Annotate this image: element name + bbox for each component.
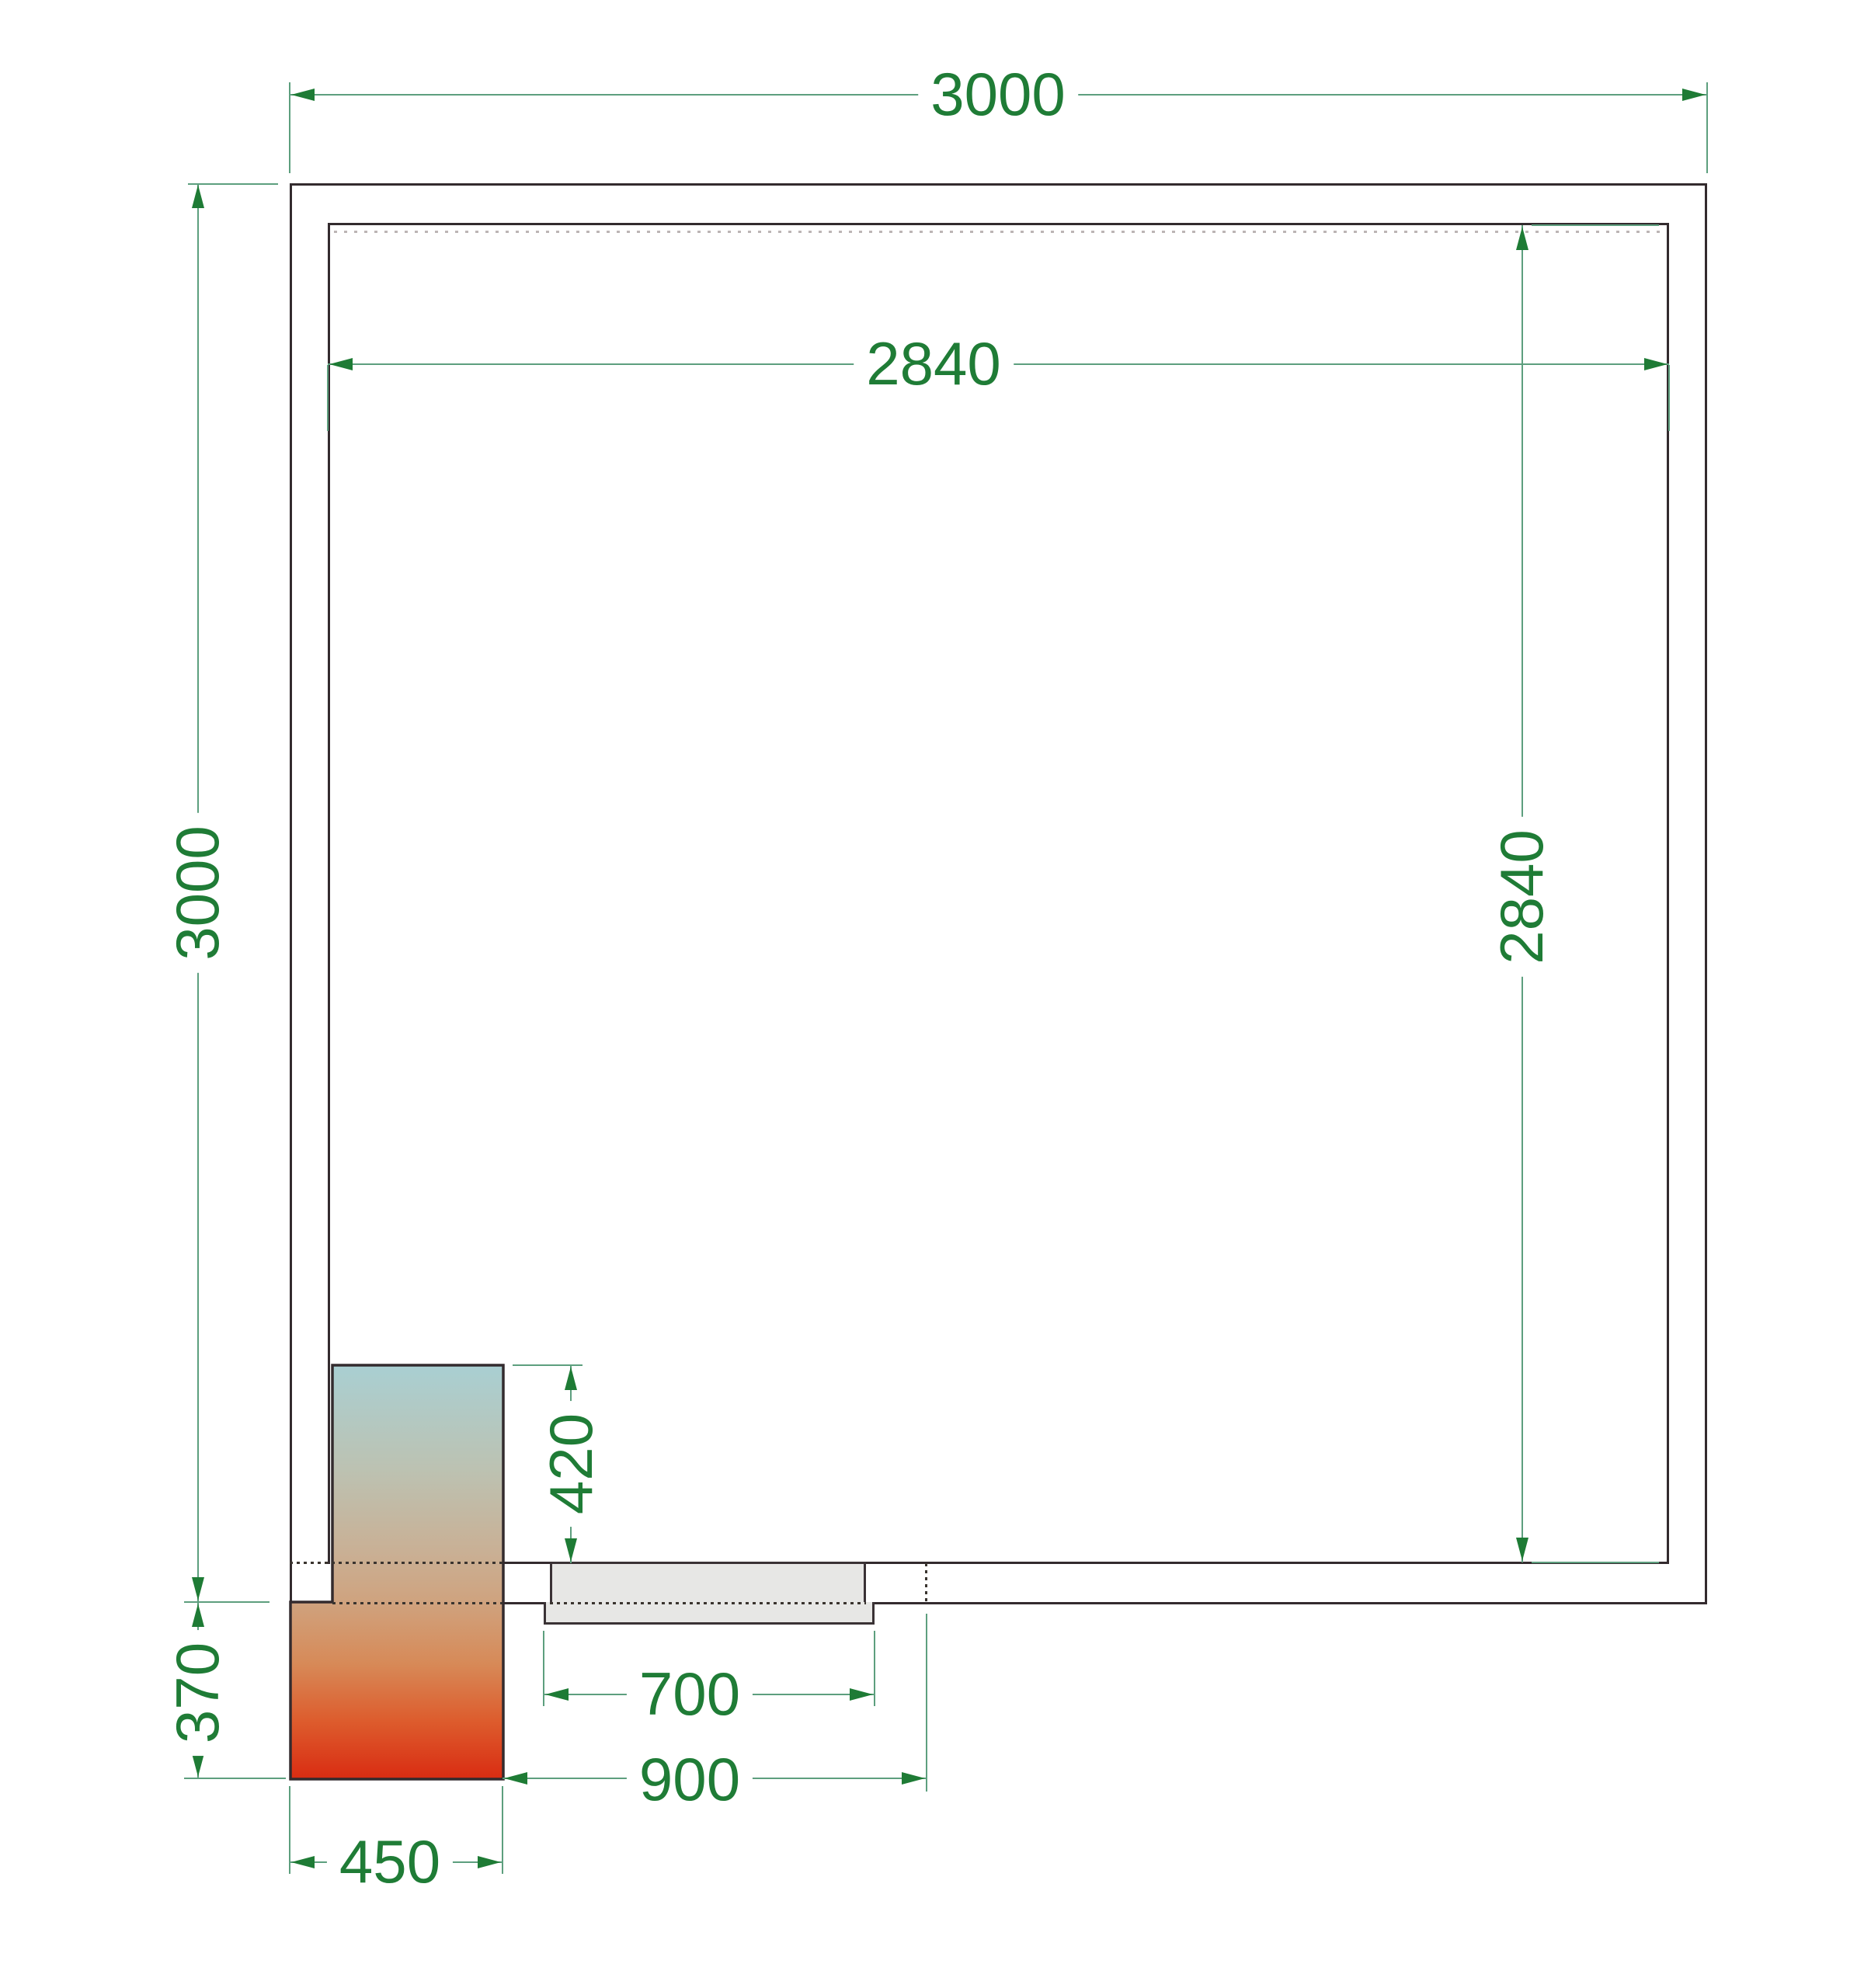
dim-text-unit-depth: 420 xyxy=(538,1401,605,1527)
ext-outer-width-left xyxy=(289,82,290,173)
dim-arrow-up-icon xyxy=(565,1367,577,1390)
dim-arrow-down-icon xyxy=(192,1753,204,1777)
dim-arrow-left-icon xyxy=(329,358,353,370)
cooling-unit-block xyxy=(288,1364,506,1781)
ceiling-hidden-line xyxy=(334,231,1667,233)
dim-arrow-down-icon xyxy=(192,1577,204,1600)
dim-text-inner-width: 2840 xyxy=(854,331,1014,398)
dim-arrow-left-icon xyxy=(504,1772,527,1785)
hidden-outer-wall-line-over-unit xyxy=(332,1602,503,1604)
ext-inner-height-top xyxy=(1532,224,1659,226)
ext-door-opening-right xyxy=(926,1614,927,1792)
dim-text-inner-height: 2840 xyxy=(1489,817,1556,977)
wall-outer-bottom-line-right xyxy=(866,1602,1707,1604)
ext-outer-width-right xyxy=(1706,82,1708,173)
hidden-inner-wall-line-over-unit xyxy=(290,1562,503,1564)
dim-arrow-left-icon xyxy=(291,1856,315,1868)
dim-arrow-right-icon xyxy=(1644,358,1668,370)
dim-text-door-opening: 900 xyxy=(627,1746,753,1813)
dim-text-unit-outer-depth: 370 xyxy=(165,1630,231,1756)
ext-inner-width-right xyxy=(1668,365,1670,431)
dim-arrow-right-icon xyxy=(478,1856,501,1868)
ext-inner-width-left xyxy=(327,365,329,431)
dim-arrow-down-icon xyxy=(565,1538,577,1562)
dim-arrow-right-icon xyxy=(902,1772,925,1785)
floor-plan-drawing: 3000 2840 3000 2840 420 370 700 900 450 xyxy=(0,0,1871,1988)
wall-outer-bottom-line-mid xyxy=(503,1602,550,1604)
dim-arrow-down-icon xyxy=(1516,1538,1528,1561)
dim-arrow-up-icon xyxy=(192,185,204,208)
dim-arrow-left-icon xyxy=(291,89,315,101)
ext-unit-depth-top xyxy=(513,1364,583,1366)
ext-inner-height-bottom xyxy=(1532,1562,1659,1563)
dim-arrow-left-icon xyxy=(545,1688,569,1701)
dim-arrow-right-icon xyxy=(850,1688,873,1701)
dim-arrow-right-icon xyxy=(1682,89,1706,101)
dim-text-outer-width: 3000 xyxy=(918,61,1078,128)
ext-unit-outer-depth-bottom xyxy=(184,1778,286,1779)
door-leaf-in-wall xyxy=(550,1562,866,1604)
wall-outer-top-line xyxy=(290,183,1707,186)
wall-inner-top-line xyxy=(328,223,1669,225)
dim-arrow-up-icon xyxy=(1516,227,1528,250)
wall-outer-right-line xyxy=(1705,183,1707,1604)
dim-text-door-leaf: 700 xyxy=(627,1661,753,1728)
dim-text-outer-height: 3000 xyxy=(165,813,231,973)
door-leaf-outside xyxy=(544,1602,875,1625)
hidden-outer-wall-line-over-door xyxy=(550,1602,866,1604)
dim-arrow-up-icon xyxy=(192,1604,204,1627)
dim-text-unit-width: 450 xyxy=(327,1829,453,1896)
hidden-door-jamb-line xyxy=(925,1563,927,1602)
